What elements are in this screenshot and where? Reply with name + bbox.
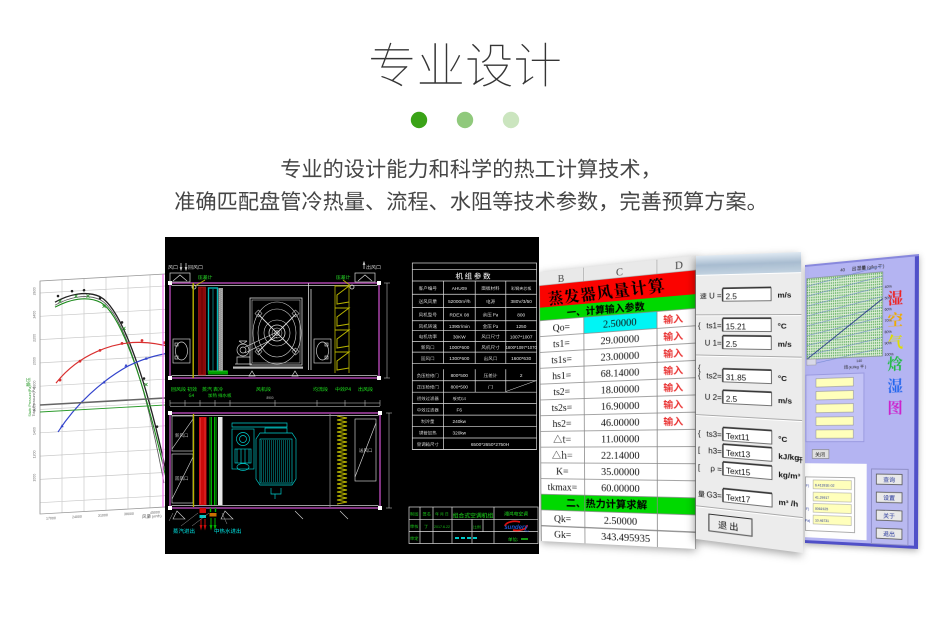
svg-text:tkmax=: tkmax=: [548, 481, 578, 493]
svg-text:41.29917: 41.29917: [815, 495, 830, 500]
svg-text:kJ/kg: kJ/kg: [778, 454, 800, 464]
svg-text:11.00000: 11.00000: [601, 433, 640, 445]
svg-text:D: D: [675, 258, 683, 271]
svg-text:1007*1007: 1007*1007: [510, 334, 533, 339]
svg-text:1250: 1250: [516, 324, 527, 329]
svg-text:hs1=: hs1=: [552, 369, 571, 381]
svg-text:{: {: [698, 372, 701, 381]
svg-text:G3=: G3=: [707, 491, 723, 501]
svg-text:F): F): [806, 506, 809, 511]
svg-text:8900: 8900: [266, 396, 273, 400]
svg-text:2.5: 2.5: [726, 395, 738, 404]
svg-text:°C: °C: [778, 376, 788, 384]
svg-text:Text13: Text13: [726, 449, 751, 460]
svg-text:40%: 40%: [885, 284, 893, 290]
svg-text:ts2s=: ts2s=: [552, 401, 573, 413]
svg-text:F): F): [806, 483, 809, 488]
svg-text:1200: 1200: [33, 450, 37, 458]
svg-text:2600: 2600: [33, 287, 37, 295]
svg-text:ltd: ltd: [525, 529, 529, 533]
svg-text:1800*1097*1070: 1800*1097*1070: [506, 345, 538, 350]
svg-text:AHU09: AHU09: [452, 286, 468, 291]
svg-text:22.14000: 22.14000: [601, 449, 640, 461]
svg-text:[: [: [698, 446, 701, 455]
svg-text:ts2=: ts2=: [553, 385, 570, 397]
svg-text:U 2=: U 2=: [705, 393, 723, 403]
svg-text:Gk=: Gk=: [554, 528, 571, 540]
svg-text:): ): [865, 364, 866, 369]
svg-text:): ): [883, 264, 885, 269]
svg-text:24000: 24000: [72, 515, 82, 520]
svg-text:0061925: 0061925: [815, 506, 829, 511]
svg-text:2400: 2400: [33, 310, 37, 318]
svg-text:hs2=: hs2=: [553, 417, 572, 429]
svg-text:18.00000: 18.00000: [601, 382, 641, 395]
svg-text:800: 800: [517, 312, 525, 317]
svg-text:16.90000: 16.90000: [601, 399, 641, 412]
svg-text:2.5: 2.5: [726, 293, 738, 302]
svg-text:2017.6.22: 2017.6.22: [434, 525, 450, 529]
svg-text:1400: 1400: [33, 427, 37, 435]
svg-text:800*500: 800*500: [451, 373, 469, 378]
svg-text:U 1=: U 1=: [705, 339, 722, 348]
svg-text:240kw: 240kw: [453, 419, 467, 424]
svg-text:Qo=: Qo=: [553, 321, 570, 334]
svg-text:ts1s=: ts1s=: [551, 353, 572, 366]
svg-text:RDEX 08: RDEX 08: [450, 312, 470, 317]
svg-text:1000: 1000: [33, 474, 37, 482]
svg-text:10.46731: 10.46731: [815, 518, 830, 523]
svg-text:Total Pressure(Pa): Total Pressure(Pa): [32, 386, 36, 416]
svg-text:ts1=: ts1=: [706, 322, 722, 331]
svg-text:140: 140: [856, 358, 862, 363]
svg-text:{: {: [698, 322, 701, 331]
svg-text:46.00000: 46.00000: [601, 416, 641, 429]
svg-text:17000: 17000: [46, 516, 56, 521]
svg-text:ts2=: ts2=: [706, 372, 722, 381]
svg-text:100%: 100%: [885, 352, 895, 358]
svg-text:2200: 2200: [33, 334, 37, 342]
svg-text:15.21: 15.21: [726, 323, 747, 332]
svg-text:h3=: h3=: [708, 447, 722, 457]
svg-text:35.00000: 35.00000: [601, 466, 640, 478]
svg-text:1000*600: 1000*600: [449, 345, 469, 350]
svg-text:C: C: [616, 265, 623, 278]
svg-text:31000: 31000: [98, 513, 108, 518]
svg-text:Text11: Text11: [726, 433, 750, 444]
svg-text:23.00000: 23.00000: [601, 349, 641, 363]
svg-text:2.50000: 2.50000: [603, 315, 637, 330]
svg-text:(m³/h): (m³/h): [152, 514, 162, 519]
svg-text:2000: 2000: [33, 357, 37, 365]
svg-text:343.495935: 343.495935: [601, 530, 651, 544]
svg-text:320kw: 320kw: [453, 430, 467, 435]
svg-text:29.00000: 29.00000: [600, 332, 640, 347]
svg-text:m/s: m/s: [777, 292, 792, 300]
svg-text:1600*630: 1600*630: [511, 356, 531, 361]
svg-text:60%: 60%: [885, 306, 893, 312]
svg-text:[: [: [698, 464, 701, 473]
svg-text:2.5: 2.5: [726, 341, 738, 350]
svg-text:800*500: 800*500: [451, 385, 469, 390]
svg-text:380V/3/50: 380V/3/50: [511, 299, 533, 304]
svg-text:B: B: [558, 272, 565, 284]
svg-text:52000m³/h: 52000m³/h: [448, 299, 471, 304]
svg-text:Pa): Pa): [805, 518, 810, 523]
svg-text:m/s: m/s: [778, 342, 793, 350]
svg-text:80%: 80%: [885, 329, 893, 335]
svg-text:°C: °C: [778, 323, 788, 331]
svg-text:6.41391E-02: 6.41391E-02: [815, 483, 835, 488]
svg-text:{: {: [698, 430, 701, 439]
svg-text:40: 40: [840, 267, 845, 272]
svg-text:1300*600: 1300*600: [449, 356, 469, 361]
svg-text:F6: F6: [457, 408, 463, 413]
svg-text:K=: K=: [556, 465, 569, 477]
svg-text:ts1=: ts1=: [553, 337, 570, 350]
svg-text:Qk=: Qk=: [554, 513, 571, 525]
svg-text:68.14000: 68.14000: [601, 366, 641, 380]
svg-text:2: 2: [520, 373, 523, 378]
svg-text:ts3=: ts3=: [706, 430, 722, 440]
svg-text:38000: 38000: [124, 512, 134, 517]
svg-text:6500*2650*2750H: 6500*2650*2750H: [471, 442, 509, 447]
svg-text:(kJ/kg: (kJ/kg: [849, 364, 859, 369]
svg-text:ρ =: ρ =: [710, 465, 722, 475]
svg-text:2.50000: 2.50000: [604, 514, 638, 527]
svg-text:60.00000: 60.00000: [601, 482, 640, 495]
svg-text:30KW: 30KW: [453, 334, 466, 339]
svg-text:1390r/min: 1390r/min: [449, 324, 470, 329]
svg-text:U =: U =: [709, 292, 722, 301]
svg-text:°C: °C: [778, 436, 788, 445]
svg-text:31.85: 31.85: [726, 374, 747, 384]
svg-text:m/s: m/s: [778, 398, 793, 406]
